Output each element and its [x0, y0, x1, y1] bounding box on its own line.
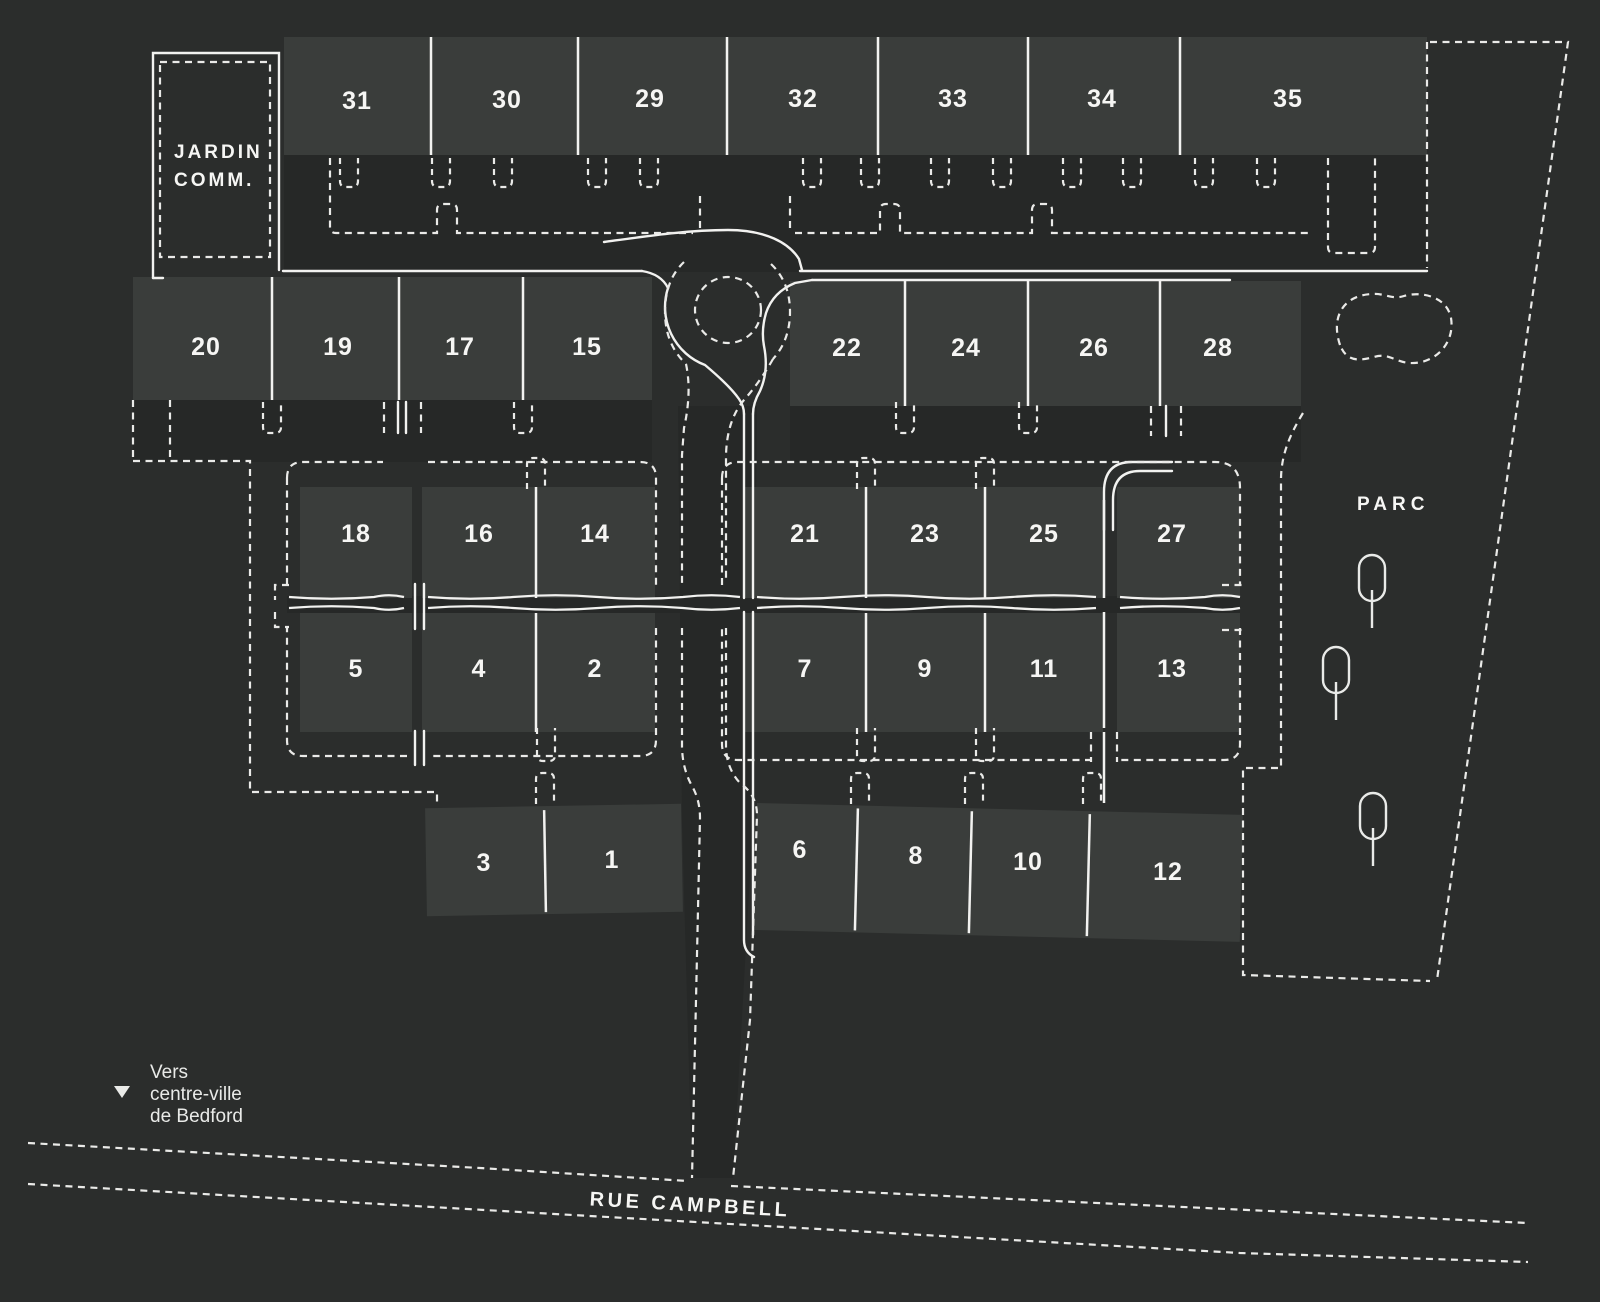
lot-label-20: 20: [191, 333, 221, 361]
lot-label-9: 9: [918, 655, 933, 683]
lot-label-5: 5: [349, 655, 364, 683]
lot-label-34: 34: [1087, 85, 1117, 113]
jardin-label-line2: COMM.: [174, 170, 254, 191]
lot-label-19: 19: [323, 333, 353, 361]
lot-4-2: [422, 613, 655, 732]
lot-label-26: 26: [1079, 334, 1109, 362]
lot-label-3: 3: [477, 849, 492, 877]
lot-label-8: 8: [909, 842, 924, 870]
lot-label-23: 23: [910, 520, 940, 548]
direction-label-line3: de Bedford: [150, 1106, 243, 1127]
lot-label-16: 16: [464, 520, 494, 548]
lot-label-10: 10: [1013, 848, 1043, 876]
lot-label-24: 24: [951, 334, 981, 362]
lot-label-7: 7: [798, 655, 813, 683]
lot-label-2: 2: [588, 655, 603, 683]
lot-label-22: 22: [832, 334, 862, 362]
site-plan-map: JARDIN COMM. PARC RUE CAMPBELL Vers cent…: [0, 0, 1600, 1302]
lot-label-18: 18: [341, 520, 371, 548]
parc-label: PARC: [1357, 494, 1429, 515]
lot-block-3-1: [425, 804, 683, 916]
lot-label-13: 13: [1157, 655, 1187, 683]
lot-label-17: 17: [445, 333, 475, 361]
lot-label-11: 11: [1030, 655, 1058, 683]
lot-label-31: 31: [342, 87, 372, 115]
lot-label-15: 15: [572, 333, 602, 361]
jardin-label-line1: JARDIN: [174, 142, 263, 163]
lot-label-32: 32: [788, 85, 818, 113]
lot-label-29: 29: [635, 85, 665, 113]
direction-label-line1: Vers: [150, 1062, 188, 1083]
site-plan-svg: JARDIN COMM. PARC RUE CAMPBELL Vers cent…: [0, 0, 1600, 1302]
lot-label-28: 28: [1203, 334, 1233, 362]
lot-label-1: 1: [605, 846, 620, 874]
lot-label-6: 6: [793, 836, 808, 864]
lot-label-21: 21: [790, 520, 820, 548]
lot-label-27: 27: [1157, 520, 1187, 548]
lot-16-14: [422, 487, 655, 598]
lot-label-14: 14: [580, 520, 610, 548]
lot-label-4: 4: [472, 655, 487, 683]
lot-label-12: 12: [1153, 858, 1183, 886]
lot-label-30: 30: [492, 86, 522, 114]
lot-label-35: 35: [1273, 85, 1303, 113]
lot-block-row-top: [284, 37, 1427, 155]
lot-label-33: 33: [938, 85, 968, 113]
lot-label-25: 25: [1029, 520, 1059, 548]
direction-label-line2: centre-ville: [150, 1084, 242, 1105]
